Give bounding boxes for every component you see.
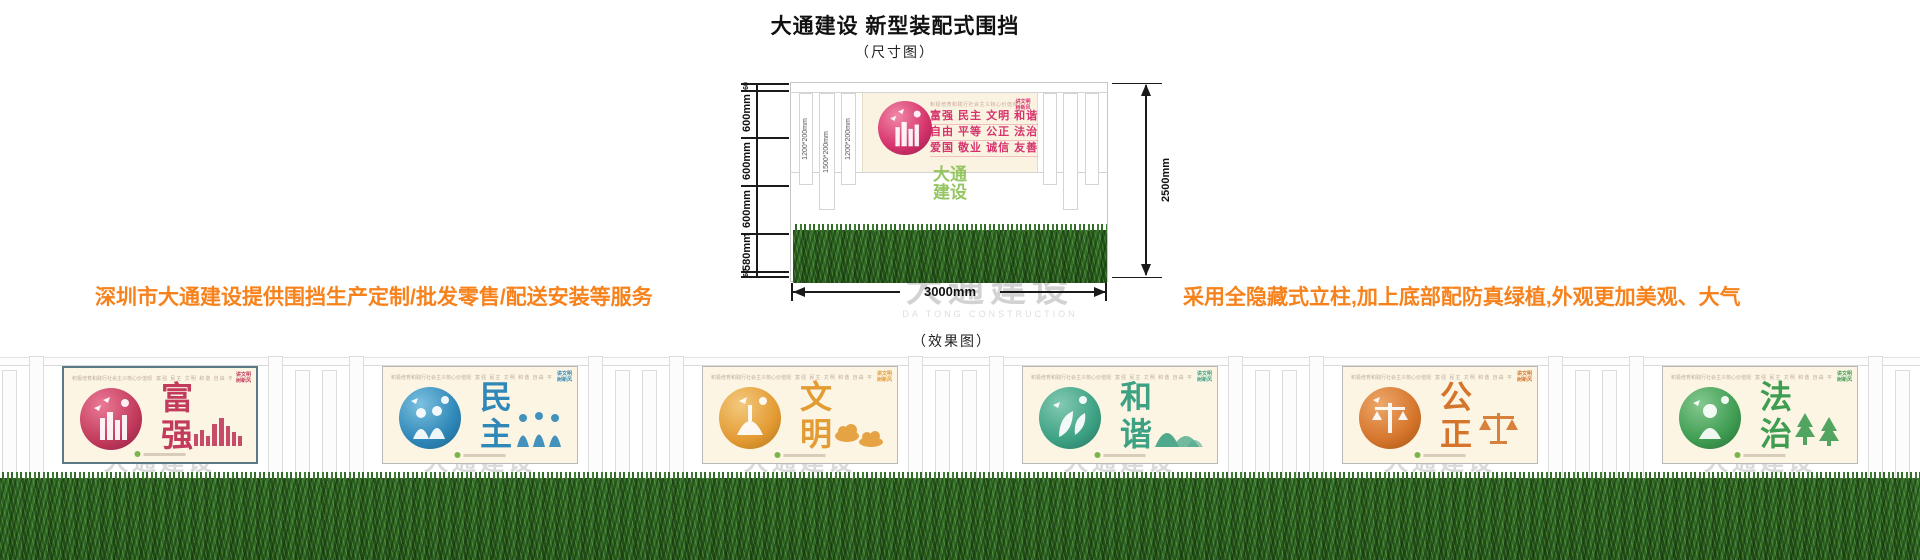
panel-heading: 积极培育和践行社会主义核心价值观	[1031, 374, 1111, 381]
hedge-main	[0, 478, 1920, 560]
papercut-crane-icon	[719, 387, 781, 449]
value-characters: 和 谐	[1115, 379, 1157, 453]
fence-panel-hexie: 积极培育和践行社会主义核心价值观 富强 民主 文明 和谐 自由 平等 公正 法治…	[1022, 366, 1218, 464]
footer-text-bar	[1424, 454, 1466, 457]
fence-panel-minzhu: 积极培育和践行社会主义核心价值观 富强 民主 文明 和谐 自由 平等 公正 法治…	[382, 366, 578, 464]
corner-tag-line: 树新风	[236, 378, 251, 384]
watermark-en: DA TONG CONSTRUCTION	[810, 309, 1170, 319]
value-char: 主	[475, 416, 517, 453]
footer-text-bar	[1744, 454, 1786, 457]
dimension-diagram-label: （尺寸图）	[0, 42, 1790, 62]
panel-heading: 积极培育和践行社会主义核心价值观	[930, 101, 1018, 108]
extension-line	[1112, 277, 1162, 278]
green-logo-dot	[135, 451, 141, 457]
panel-corner-tag: 讲文明 树新风	[236, 372, 251, 384]
extension-line	[1112, 83, 1162, 84]
panel-corner-tag: 讲文明 树新风	[557, 371, 572, 383]
green-watermark-line: 大通	[915, 166, 985, 184]
footer-text-bar	[784, 454, 826, 457]
footer-text-bar	[464, 454, 506, 457]
dimension-line-bottom	[1000, 291, 1106, 293]
trees-illustration	[1793, 409, 1845, 447]
panel-heading: 积极培育和践行社会主义核心价值观	[1351, 374, 1431, 381]
corner-tag-line: 树新风	[1837, 377, 1852, 383]
people-illustration	[513, 409, 565, 447]
value-characters: 文 明	[795, 379, 837, 453]
fence-panel-fazhi: 积极培育和践行社会主义核心价值观 富强 民主 文明 和谐 自由 平等 公正 法治…	[1662, 366, 1858, 464]
total-height-label: 2500mm	[1160, 145, 1172, 215]
post-strip	[1063, 93, 1078, 210]
slogan-line: 爱国 敬业 诚信 友善	[930, 141, 1038, 157]
arrow-down-icon	[1141, 264, 1151, 276]
papercut-circle-illustration	[719, 387, 781, 449]
post-size-label: 1500*200mm	[822, 115, 832, 189]
service-note-left: 深圳市大通建设提供围挡生产定制/批发零售/配送安装等服务	[95, 281, 653, 311]
value-characters: 民 主	[475, 379, 517, 453]
papercut-circle-illustration	[1039, 387, 1101, 449]
mountains-illustration	[1153, 409, 1205, 447]
value-char: 谐	[1115, 416, 1157, 453]
effect-diagram-label: （效果图）	[0, 331, 1904, 351]
panel-corner-tag: 讲文明 树新风	[1197, 371, 1212, 383]
post-strip: 1200*200mm	[799, 93, 813, 185]
corner-tag-line: 树新风	[877, 377, 892, 383]
panel-heading: 积极培育和践行社会主义核心价值观	[391, 374, 471, 381]
bar-skyline-illustration	[192, 408, 244, 446]
value-char: 民	[475, 379, 517, 416]
papercut-figure-icon	[1679, 387, 1741, 449]
slogan-line: 自由 平等 公正 法治	[930, 125, 1038, 141]
scales-illustration	[1473, 409, 1525, 447]
value-char: 明	[795, 416, 837, 453]
segment-label: 60	[741, 243, 753, 303]
panel-corner-tag: 讲文明 树新风	[877, 371, 892, 383]
papercut-scales-icon	[1359, 387, 1421, 449]
value-char: 公	[1435, 379, 1477, 416]
panel-footer-mark	[1735, 452, 1786, 458]
green-logo-dot	[1735, 452, 1741, 458]
value-characters: 公 正	[1435, 379, 1477, 453]
footer-text-bar	[1104, 454, 1146, 457]
value-characters: 法 治	[1755, 379, 1797, 453]
papercut-circle-illustration	[80, 388, 142, 450]
papercut-skyline-icon	[80, 388, 142, 450]
panel-heading: 积极培育和践行社会主义核心价值观	[72, 375, 152, 382]
green-logo-dot	[1095, 452, 1101, 458]
total-width-label: 3000mm	[900, 284, 1000, 299]
papercut-people-icon	[399, 387, 461, 449]
value-char: 治	[1755, 416, 1797, 453]
value-char: 和	[1115, 379, 1157, 416]
page-title: 大通建设 新型装配式围挡	[0, 10, 1790, 40]
corner-tag-line: 树新风	[1517, 377, 1532, 383]
arrow-left-icon	[793, 287, 805, 297]
papercut-circle-illustration	[1359, 387, 1421, 449]
post-size-label: 1200*200mm	[844, 102, 854, 176]
panel-footer-mark	[1095, 452, 1146, 458]
fence-panel-gongzheng: 积极培育和践行社会主义核心价值观 富强 民主 文明 和谐 自由 平等 公正 法治…	[1342, 366, 1538, 464]
green-logo-dot	[775, 452, 781, 458]
value-char: 文	[795, 379, 837, 416]
corner-tag-line: 树新风	[1197, 377, 1212, 383]
post-strip	[1085, 93, 1099, 185]
papercut-circle-illustration	[1679, 387, 1741, 449]
green-watermark: 大通 建设	[915, 166, 985, 202]
panel-footer-mark	[135, 451, 186, 457]
papercut-circle-illustration	[399, 387, 461, 449]
footer-text-bar	[144, 453, 186, 456]
panel-heading: 积极培育和践行社会主义核心价值观	[1671, 374, 1751, 381]
corner-tag-line: 树新风	[1012, 105, 1034, 111]
hedge-diagram	[793, 230, 1107, 283]
post-strip: 1500*200mm	[819, 93, 835, 210]
clouds-illustration	[833, 409, 885, 447]
arrow-right-icon	[1094, 287, 1106, 297]
panel-corner-tag: 讲文明 树新风	[1837, 371, 1852, 383]
core-values-slogan: 富强 民主 文明 和谐 自由 平等 公正 法治 爱国 敬业 诚信 友善	[930, 109, 1038, 157]
papercut-skyline-icon	[878, 101, 932, 155]
corner-tag-line: 树新风	[557, 377, 572, 383]
dimension-line-left	[756, 83, 758, 278]
value-char: 法	[1755, 379, 1797, 416]
arrow-up-icon	[1141, 84, 1151, 96]
panel-footer-mark	[455, 452, 506, 458]
panel-corner-tag: 讲文明 树新风	[1012, 99, 1034, 111]
post-strip	[1043, 93, 1057, 185]
papercut-circle-illustration	[878, 101, 932, 155]
dimension-line-right	[1145, 85, 1147, 275]
panel-footer-mark	[1415, 452, 1466, 458]
panel-corner-tag: 讲文明 树新风	[1517, 371, 1532, 383]
green-watermark-line: 建设	[915, 184, 985, 202]
dimension-line-bottom	[793, 291, 900, 293]
green-logo-dot	[455, 452, 461, 458]
post-size-label: 1200*200mm	[801, 102, 811, 176]
papercut-leaves-icon	[1039, 387, 1101, 449]
post-strip: 1200*200mm	[841, 93, 856, 185]
panel-heading: 积极培育和践行社会主义核心价值观	[711, 374, 791, 381]
fence-panel-wenming: 积极培育和践行社会主义核心价值观 富强 民主 文明 和谐 自由 平等 公正 法治…	[702, 366, 898, 464]
fence-panel-fuqiang: 积极培育和践行社会主义核心价值观 富强 民主 文明 和谐 自由 平等 公正 法治…	[62, 366, 258, 464]
poster: 大通建设 新型装配式围挡 （尺寸图） 1200*200mm 1500*200mm…	[0, 0, 1920, 560]
green-logo-dot	[1415, 452, 1421, 458]
value-char: 正	[1435, 416, 1477, 453]
slogan-line: 富强 民主 文明 和谐	[930, 109, 1038, 125]
feature-note-right: 采用全隐藏式立柱,加上底部配防真绿植,外观更加美观、大气	[1183, 281, 1741, 311]
panel-footer-mark	[775, 452, 826, 458]
